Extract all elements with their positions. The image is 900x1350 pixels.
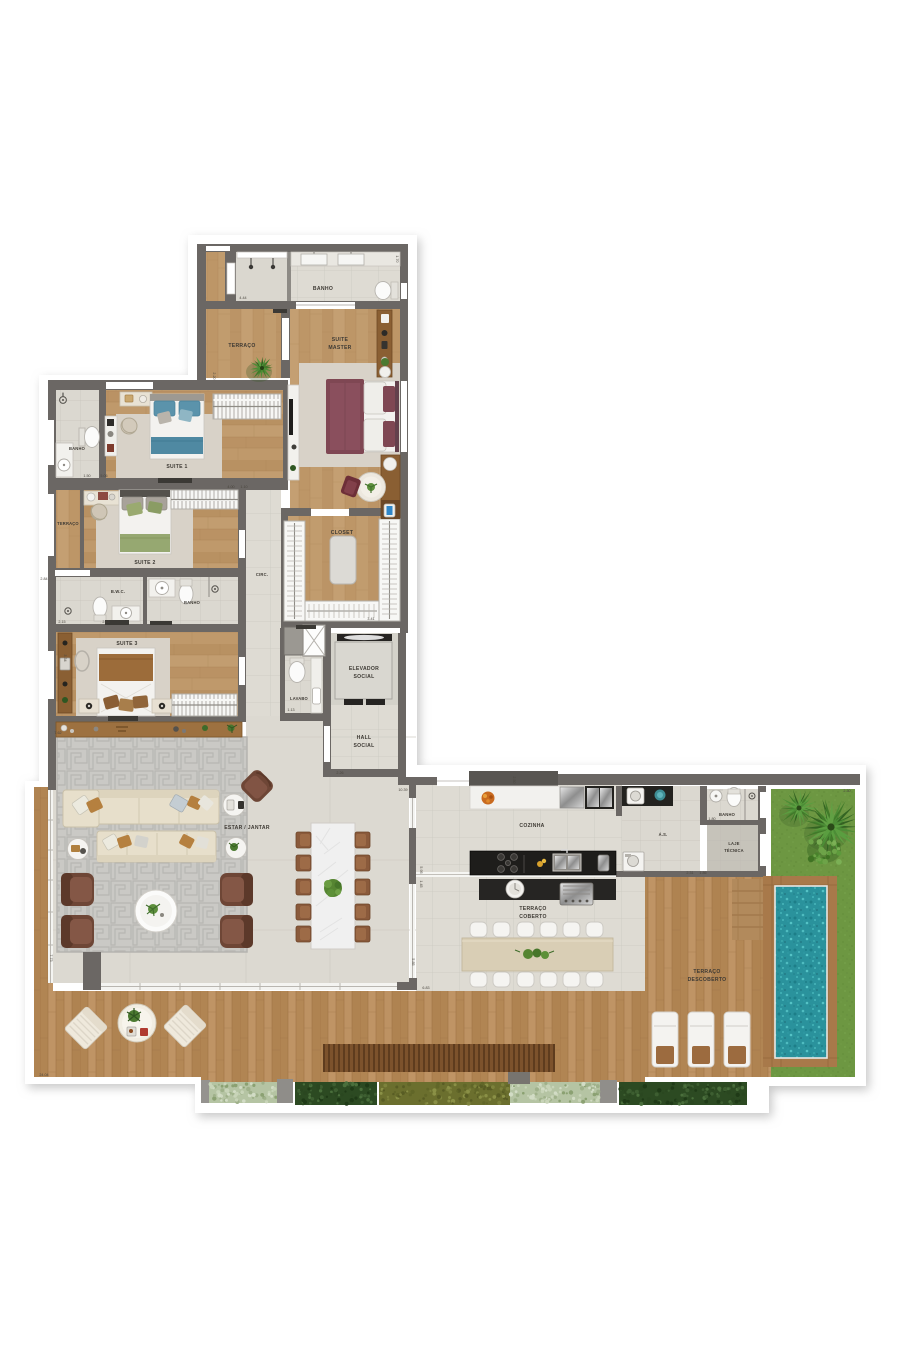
svg-text:1.50: 1.50 xyxy=(83,474,90,478)
svg-text:6.83: 6.83 xyxy=(422,986,429,990)
svg-text:3.34: 3.34 xyxy=(63,654,67,661)
svg-text:CIRC.: CIRC. xyxy=(256,572,268,577)
svg-text:DESCOBERTO: DESCOBERTO xyxy=(688,977,727,983)
svg-text:2.26: 2.26 xyxy=(336,771,343,775)
svg-text:SUITE: SUITE xyxy=(332,337,349,343)
svg-text:2.20: 2.20 xyxy=(212,372,216,379)
svg-text:7.73: 7.73 xyxy=(49,954,53,961)
svg-text:1.45: 1.45 xyxy=(419,880,423,887)
svg-text:3.41: 3.41 xyxy=(367,617,374,621)
svg-text:2.31: 2.31 xyxy=(686,871,693,875)
svg-text:CLOSET: CLOSET xyxy=(331,530,354,536)
svg-text:1.86: 1.86 xyxy=(699,871,706,875)
svg-text:SUITE 1: SUITE 1 xyxy=(166,464,187,470)
svg-text:1.80: 1.80 xyxy=(708,817,715,821)
svg-text:B.W.C.: B.W.C. xyxy=(111,589,125,594)
svg-text:LAJE: LAJE xyxy=(728,841,739,846)
svg-text:TÉCNICA: TÉCNICA xyxy=(724,848,744,853)
svg-text:TERRAÇO: TERRAÇO xyxy=(57,521,79,526)
svg-text:TERRAÇO: TERRAÇO xyxy=(228,343,255,349)
svg-text:5.85: 5.85 xyxy=(411,958,415,965)
svg-text:COZINHA: COZINHA xyxy=(519,823,544,829)
svg-text:Á.S.: Á.S. xyxy=(659,832,668,837)
svg-text:BANHO: BANHO xyxy=(719,812,736,817)
svg-text:2.45: 2.45 xyxy=(102,620,109,624)
svg-text:ELEVADOR: ELEVADOR xyxy=(349,666,379,672)
svg-text:LAVABO: LAVABO xyxy=(290,696,308,701)
svg-text:TERRAÇO: TERRAÇO xyxy=(693,969,720,975)
svg-text:1.70: 1.70 xyxy=(395,255,399,262)
svg-text:SUITE 3: SUITE 3 xyxy=(116,641,137,647)
svg-text:5.06: 5.06 xyxy=(100,474,107,478)
svg-text:MASTER: MASTER xyxy=(328,345,351,351)
svg-text:SOCIAL: SOCIAL xyxy=(353,743,374,749)
svg-text:SUITE 2: SUITE 2 xyxy=(134,560,155,566)
svg-text:SOCIAL: SOCIAL xyxy=(353,674,374,680)
svg-text:2.15: 2.15 xyxy=(58,620,65,624)
svg-text:BANHO: BANHO xyxy=(313,286,333,292)
svg-text:ESTAR / JANTAR: ESTAR / JANTAR xyxy=(224,825,270,831)
svg-text:7.62: 7.62 xyxy=(54,731,61,735)
svg-text:10.39: 10.39 xyxy=(398,788,407,792)
svg-text:2.50: 2.50 xyxy=(512,776,516,783)
svg-text:5.95: 5.95 xyxy=(419,866,423,873)
svg-text:HALL: HALL xyxy=(357,735,372,741)
svg-text:4.00: 4.00 xyxy=(227,485,234,489)
svg-text:4.44: 4.44 xyxy=(239,296,246,300)
svg-text:BANHO: BANHO xyxy=(184,600,201,605)
svg-text:2.30: 2.30 xyxy=(843,789,850,793)
svg-text:1.10: 1.10 xyxy=(240,485,247,489)
svg-text:1.13: 1.13 xyxy=(287,708,294,712)
svg-text:BANHO: BANHO xyxy=(69,446,86,451)
svg-text:COBERTO: COBERTO xyxy=(519,914,546,920)
svg-text:24.04: 24.04 xyxy=(39,1073,48,1077)
svg-text:TERRAÇO: TERRAÇO xyxy=(519,906,546,912)
svg-text:2.84: 2.84 xyxy=(40,577,47,581)
